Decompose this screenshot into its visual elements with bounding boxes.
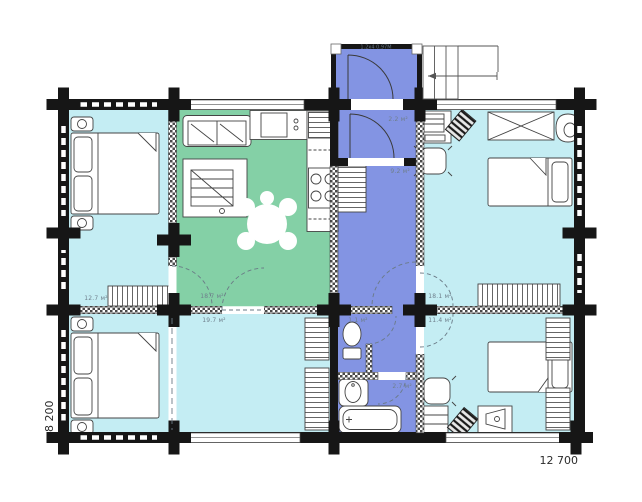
lamp [78,219,87,228]
pillow [552,162,568,202]
corridor-label: 9.2 м² [390,168,410,175]
lamp [78,423,87,432]
wardrobe [478,284,560,306]
monitor [424,114,444,132]
wc-fixtures [343,322,361,359]
pillow [74,378,92,415]
toilet-tank [343,348,361,359]
wardrobe [546,388,570,430]
bath-label: 2.7 м² [392,383,412,390]
tap [294,126,298,130]
toilet-bowl [343,322,361,346]
sink-drain [352,384,355,387]
bedroom3-furniture [71,317,159,434]
height-dimension: 8 200 [43,401,56,433]
wall-bath-top-left [338,373,378,380]
lamp [78,320,87,329]
entrance-gap [346,99,406,110]
entry-hall-label: 2.2 м² [388,116,408,123]
dining-table [247,204,287,244]
keyboard [425,135,445,141]
wc-label: 1.1 м² [348,317,368,324]
wall-corridor-bed2 [416,110,424,266]
burner [311,174,321,184]
pillow [74,176,92,211]
pillow [74,337,92,374]
wall-bed2-bed4 [426,306,574,314]
hall-room-furniture [305,318,329,430]
wardrobe [305,368,329,430]
floor-plan-page: 1.2x4 0.97M 2.2 м² 9.2 м² 1.1 м² 2.7 м² … [0,0,642,502]
wall-corridor-kitchen [330,166,338,306]
entry-hall-gap [348,158,404,166]
chair [260,191,274,205]
monitor-cam [495,417,500,422]
tap [294,119,298,123]
wall-wc-right [366,344,372,374]
corridor-lower [372,314,416,372]
burner [311,191,321,201]
bed1-label: 12.7 м² [84,295,108,302]
hall-room-label: 19.7 м² [202,317,226,324]
vestibule-label: 1.2x4 0.97M [360,45,391,51]
wardrobe [108,286,170,306]
corridor-closet [338,166,366,212]
lamp [78,120,87,129]
living-label: 18.7 м² [200,293,224,300]
wall-bath-top-right [406,373,416,380]
width-dimension: 12 700 [540,454,579,467]
pillow [74,137,92,172]
porch-stairs [423,46,498,99]
kitchen-sink [261,113,287,137]
wall-corridor-bed4 [416,354,424,433]
office-chair [424,378,450,404]
dresser [421,406,448,434]
bed4-label: 11.4 м² [428,317,452,324]
knob [220,209,225,214]
stairs-box [423,46,458,99]
floor-plan: 1.2x4 0.97M 2.2 м² 9.2 м² 1.1 м² 2.7 м² … [0,0,642,502]
stairs-ext [458,46,498,72]
bed2-label: 18.1 м² [428,293,452,300]
wardrobe [546,318,570,360]
wardrobe [305,318,329,360]
wall-bed1-bed3 [68,306,168,314]
